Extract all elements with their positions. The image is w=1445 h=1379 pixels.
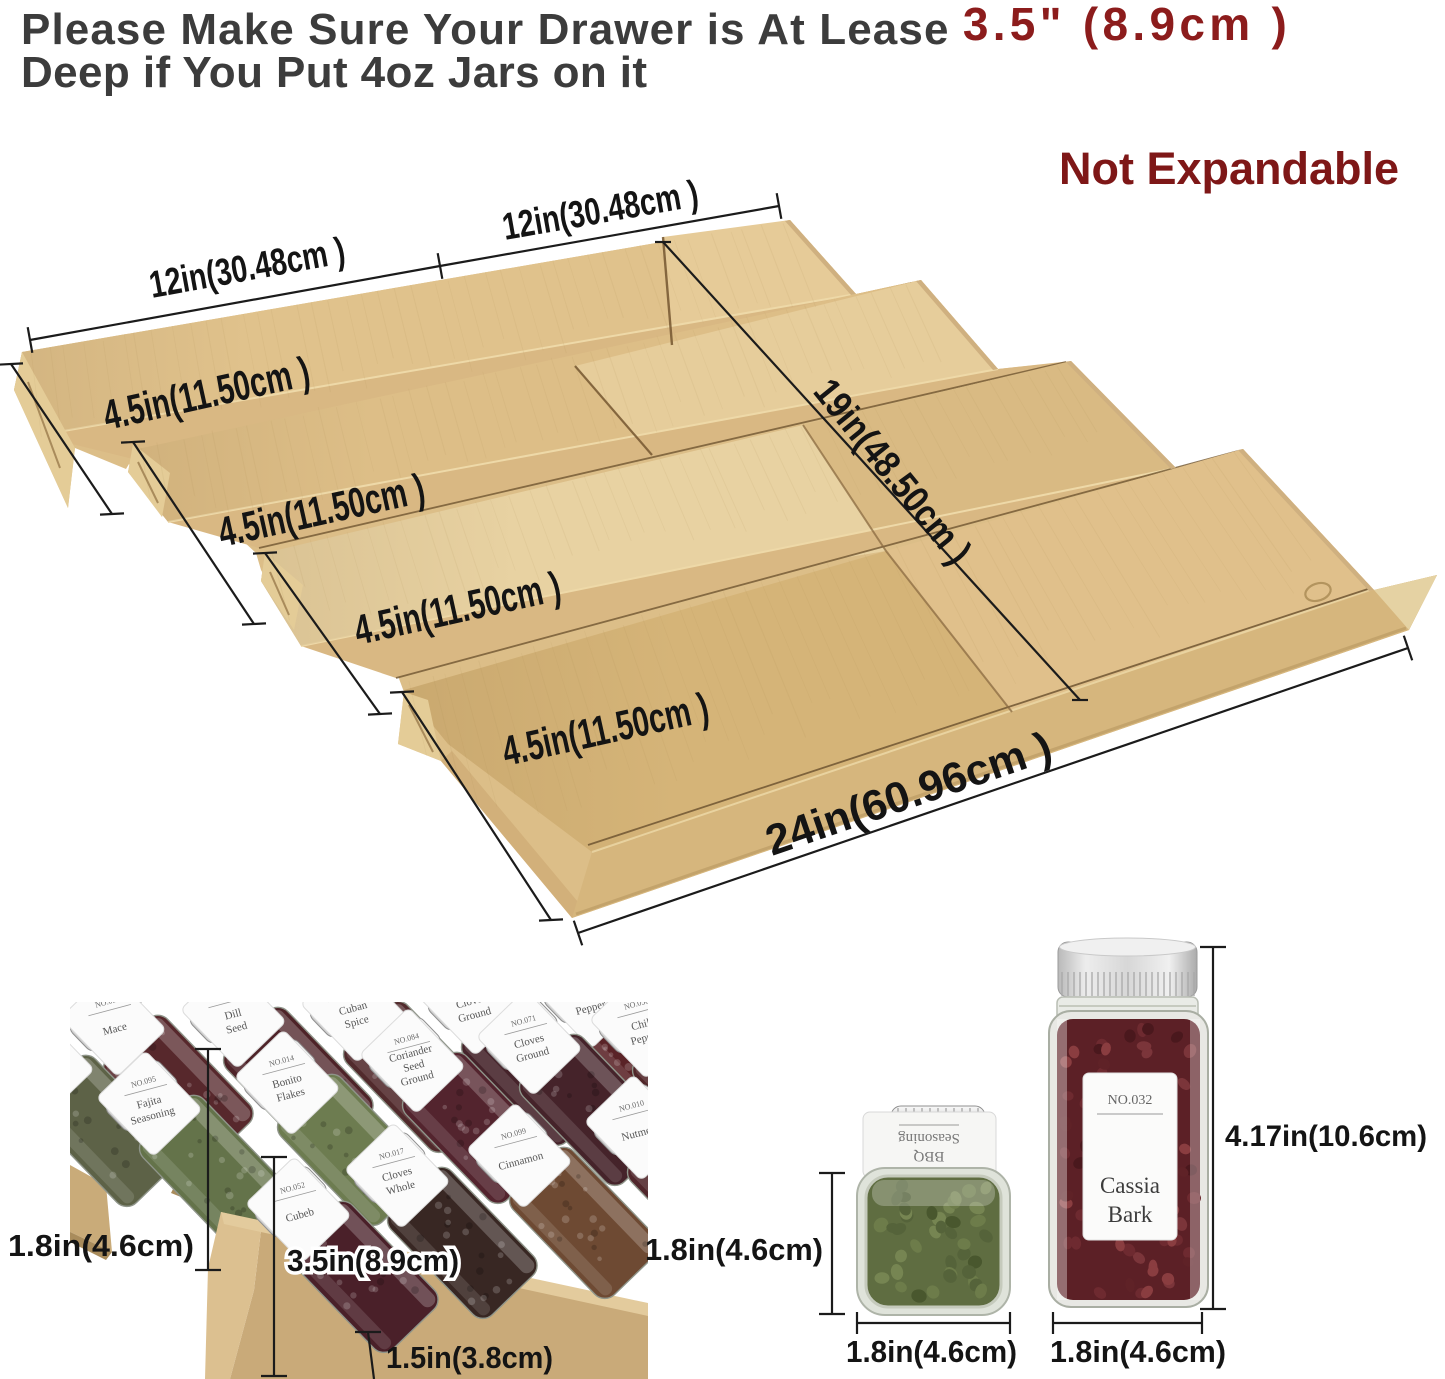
svg-text:BBQ: BBQ — [27, 1048, 52, 1065]
svg-text:NO.062: NO.062 — [452, 973, 479, 988]
svg-text:Paprika: Paprika — [683, 984, 719, 1004]
svg-text:1.8in(4.6cm): 1.8in(4.6cm) — [846, 1334, 1017, 1369]
svg-text:Cassia: Cassia — [1100, 1173, 1160, 1198]
svg-text:Bark: Bark — [1108, 1202, 1153, 1227]
svg-text:NO.037: NO.037 — [568, 966, 595, 981]
svg-text:NO.076: NO.076 — [733, 1070, 760, 1085]
svg-text:BBQ: BBQ — [913, 1148, 944, 1164]
svg-text:Chicken: Chicken — [24, 1059, 63, 1080]
svg-text:Anise: Anise — [740, 1096, 768, 1114]
svg-text:1.5in(3.8cm): 1.5in(3.8cm) — [386, 1340, 553, 1375]
svg-text:3.5in(8.9cm): 3.5in(8.9cm) — [287, 1243, 459, 1278]
svg-text:NO.056: NO.056 — [214, 986, 241, 1001]
svg-text:Seasoning: Seasoning — [23, 1070, 70, 1093]
svg-text:NO.022: NO.022 — [680, 959, 707, 974]
svg-text:NO.016: NO.016 — [334, 980, 361, 995]
svg-text:Seasoning: Seasoning — [898, 1130, 960, 1146]
svg-text:NO.062: NO.062 — [22, 1034, 49, 1049]
svg-text:4.17in(10.6cm): 4.17in(10.6cm) — [1225, 1120, 1427, 1153]
svg-text:1.8in(4.6cm): 1.8in(4.6cm) — [8, 1228, 194, 1263]
svg-text:12in(30.48cm ): 12in(30.48cm ) — [146, 230, 348, 307]
svg-text:1.8in(4.6cm): 1.8in(4.6cm) — [1050, 1334, 1226, 1369]
svg-text:Chili: Chili — [575, 986, 599, 1003]
svg-text:1.8in(4.6cm): 1.8in(4.6cm) — [645, 1232, 823, 1267]
svg-text:NO.032: NO.032 — [1108, 1093, 1153, 1108]
